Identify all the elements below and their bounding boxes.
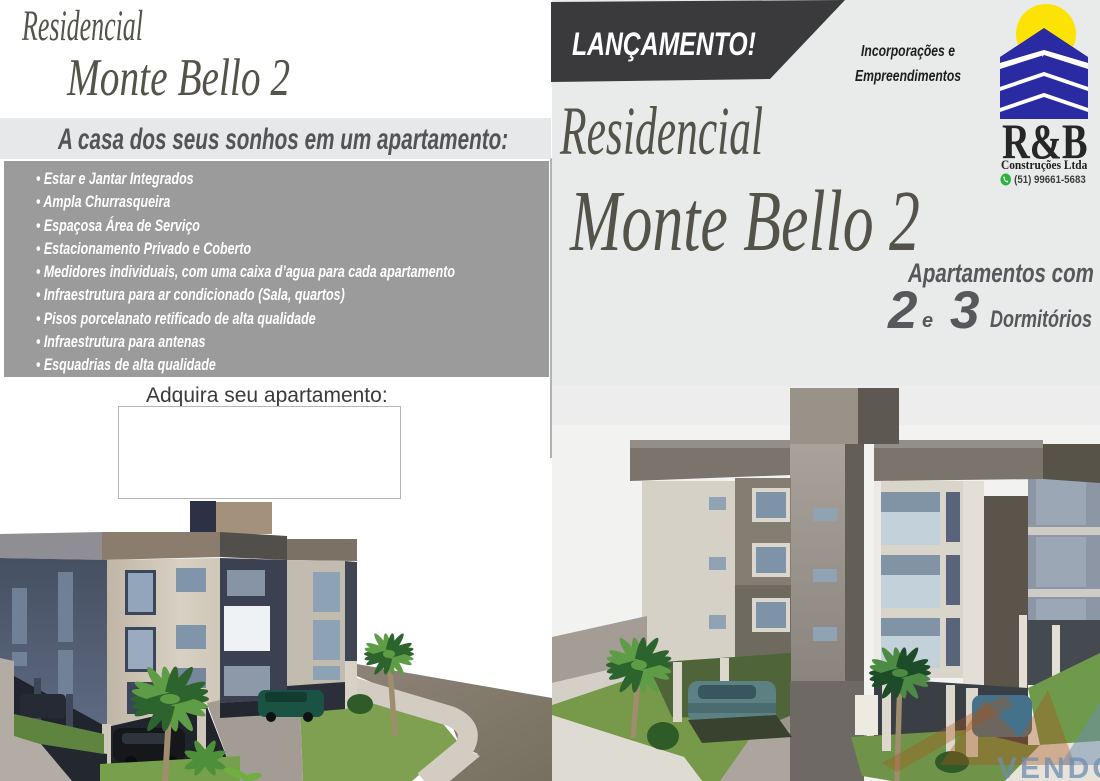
svg-text:VENDO: VENDO	[997, 752, 1100, 781]
